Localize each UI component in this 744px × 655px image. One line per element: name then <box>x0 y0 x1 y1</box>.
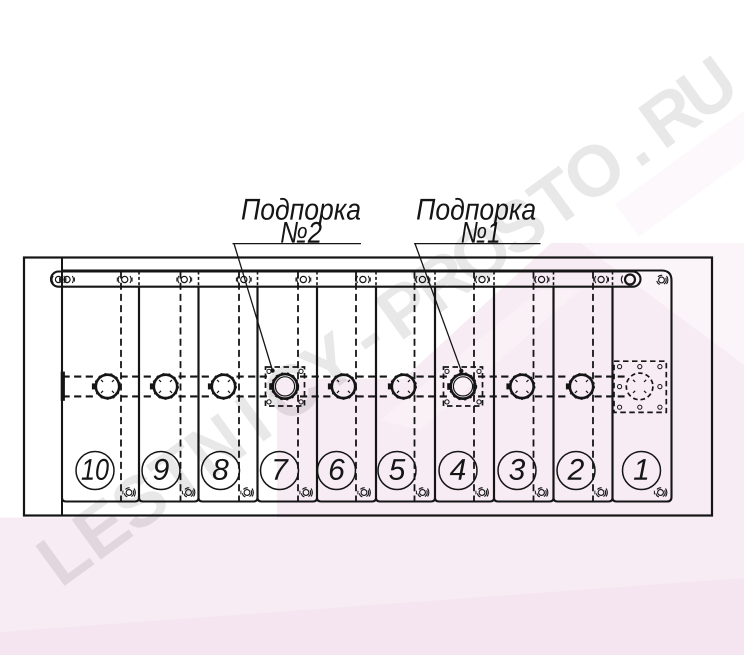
svg-text:6: 6 <box>328 454 345 487</box>
svg-text:1: 1 <box>633 454 650 487</box>
svg-text:3: 3 <box>509 454 526 487</box>
svg-text:8: 8 <box>212 454 229 487</box>
svg-text:4: 4 <box>450 454 467 487</box>
svg-text:7: 7 <box>271 454 289 487</box>
svg-text:№1: №1 <box>461 217 501 250</box>
svg-text:9: 9 <box>153 454 170 487</box>
svg-text:2: 2 <box>567 454 585 487</box>
svg-text:10: 10 <box>81 454 109 487</box>
svg-text:5: 5 <box>389 454 406 487</box>
svg-text:№2: №2 <box>280 217 322 250</box>
